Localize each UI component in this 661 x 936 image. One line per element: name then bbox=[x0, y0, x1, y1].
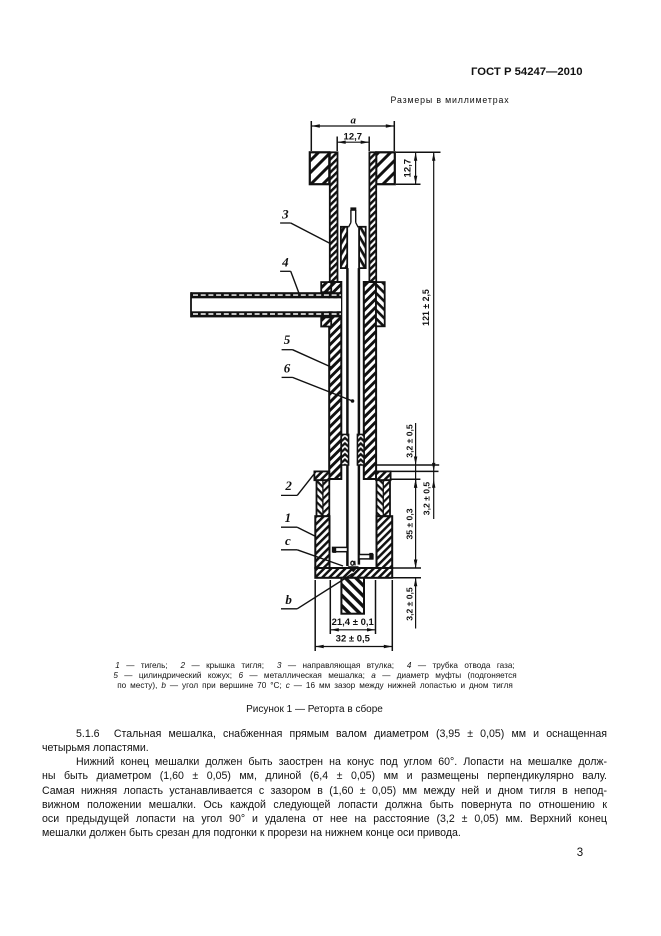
svg-text:12,7: 12,7 bbox=[402, 159, 413, 178]
svg-text:a: a bbox=[350, 115, 356, 127]
svg-text:32 ± 0,5: 32 ± 0,5 bbox=[336, 634, 371, 645]
svg-text:3,2 ± 0,5: 3,2 ± 0,5 bbox=[404, 424, 414, 458]
svg-text:5: 5 bbox=[284, 332, 291, 347]
svg-text:4: 4 bbox=[281, 254, 289, 269]
svg-text:3,2 ± 0,5: 3,2 ± 0,5 bbox=[422, 482, 432, 516]
svg-text:3,2 ± 0,5: 3,2 ± 0,5 bbox=[404, 587, 414, 621]
svg-text:3: 3 bbox=[281, 207, 289, 222]
svg-text:2: 2 bbox=[284, 478, 292, 493]
svg-text:21,4 ± 0,1: 21,4 ± 0,1 bbox=[332, 617, 375, 628]
svg-text:35 ± 0,3: 35 ± 0,3 bbox=[404, 508, 414, 539]
svg-text:121 ± 2,5: 121 ± 2,5 bbox=[421, 289, 431, 326]
svg-text:b: b bbox=[285, 592, 292, 607]
svg-text:c: c bbox=[285, 533, 291, 548]
svg-text:12,7: 12,7 bbox=[344, 132, 363, 143]
svg-text:1: 1 bbox=[285, 510, 292, 525]
svg-text:6: 6 bbox=[284, 360, 291, 375]
